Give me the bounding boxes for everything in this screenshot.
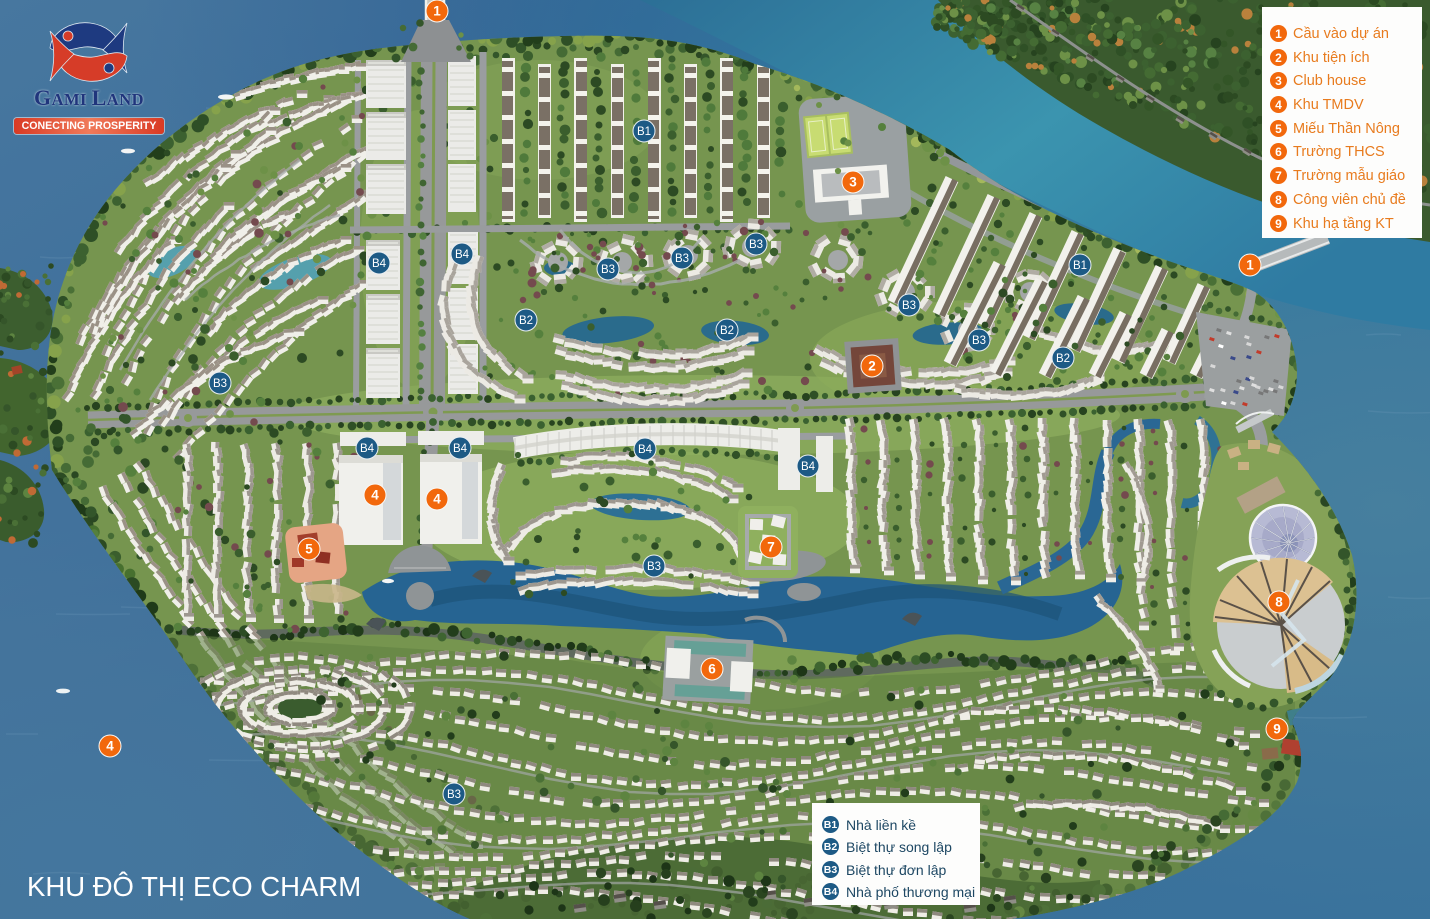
svg-text:B1: B1 xyxy=(1073,260,1087,272)
svg-text:9: 9 xyxy=(1273,722,1281,737)
svg-text:B3: B3 xyxy=(601,264,615,276)
svg-text:4: 4 xyxy=(106,739,114,754)
svg-text:B2: B2 xyxy=(1056,353,1070,365)
svg-text:B3: B3 xyxy=(647,561,661,573)
svg-text:B2: B2 xyxy=(519,315,533,327)
svg-text:B3: B3 xyxy=(447,789,461,801)
svg-text:B4: B4 xyxy=(360,443,375,455)
svg-text:B3: B3 xyxy=(213,378,227,390)
svg-text:B1: B1 xyxy=(637,126,651,138)
svg-text:B3: B3 xyxy=(902,300,916,312)
svg-text:8: 8 xyxy=(1275,595,1283,610)
svg-text:B4: B4 xyxy=(638,444,653,456)
svg-text:4: 4 xyxy=(371,488,379,503)
svg-text:2: 2 xyxy=(868,359,876,374)
svg-text:1: 1 xyxy=(433,4,441,19)
svg-text:B3: B3 xyxy=(972,335,986,347)
svg-text:B4: B4 xyxy=(453,443,468,455)
svg-text:6: 6 xyxy=(708,662,716,677)
svg-text:5: 5 xyxy=(305,542,313,557)
svg-text:1: 1 xyxy=(1246,258,1254,273)
svg-text:4: 4 xyxy=(433,492,441,507)
svg-text:B3: B3 xyxy=(749,239,763,251)
svg-text:3: 3 xyxy=(849,175,857,190)
svg-text:B4: B4 xyxy=(372,258,387,270)
svg-text:7: 7 xyxy=(767,540,775,555)
svg-text:B4: B4 xyxy=(455,249,470,261)
svg-text:B4: B4 xyxy=(801,461,816,473)
svg-text:B2: B2 xyxy=(720,325,734,337)
svg-text:B3: B3 xyxy=(675,253,689,265)
